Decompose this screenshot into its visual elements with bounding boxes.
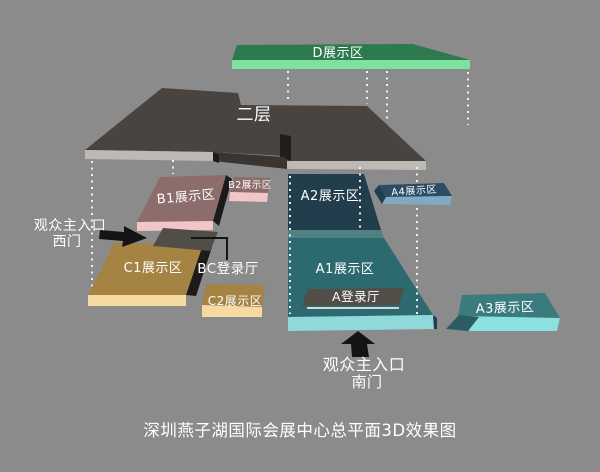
a3-area-label: A3展示区: [475, 300, 534, 317]
c2-area-slab: C2展示区: [202, 284, 265, 317]
a2-area-label: A2展示区: [301, 189, 360, 204]
south-entrance-label-line1: 观众主入口: [323, 355, 406, 374]
second-floor-label: 二层: [237, 105, 272, 125]
second-floor-front-edge-right: [287, 161, 426, 170]
a1-area-label: A1展示区: [316, 262, 375, 277]
south-entrance-label-line2: 南门: [351, 373, 382, 391]
c1-front-face: [88, 295, 186, 306]
c1-area-label: C1展示区: [124, 261, 183, 276]
west-entrance-label-line1: 观众主入口: [34, 218, 107, 234]
west-entrance-label-line2: 西门: [53, 234, 82, 250]
a4-area-slab: A4展示区: [374, 183, 452, 205]
b2-front-face: [229, 192, 268, 202]
d-area-label: D展示区: [312, 46, 363, 61]
a-front-face: [288, 315, 434, 331]
diagram-canvas: D展示区 二层 B1展示区 B2展示区: [0, 0, 600, 472]
floor-plan-diagram: D展示区 二层 B1展示区 B2展示区: [0, 0, 600, 472]
b2-area-slab: B2展示区: [228, 177, 272, 202]
bc-hall-label: BC登录厅: [197, 261, 258, 277]
a-hall-label: A登录厅: [332, 289, 380, 304]
a3-area-slab: A3展示区: [446, 293, 560, 331]
a-step-face: [288, 230, 384, 238]
c2-area-label: C2展示区: [208, 294, 263, 308]
b2-area-label: B2展示区: [228, 180, 272, 191]
d-area-front-face: [232, 60, 470, 69]
diagram-caption: 深圳燕子湖国际会展中心总平面3D效果图: [143, 421, 456, 440]
